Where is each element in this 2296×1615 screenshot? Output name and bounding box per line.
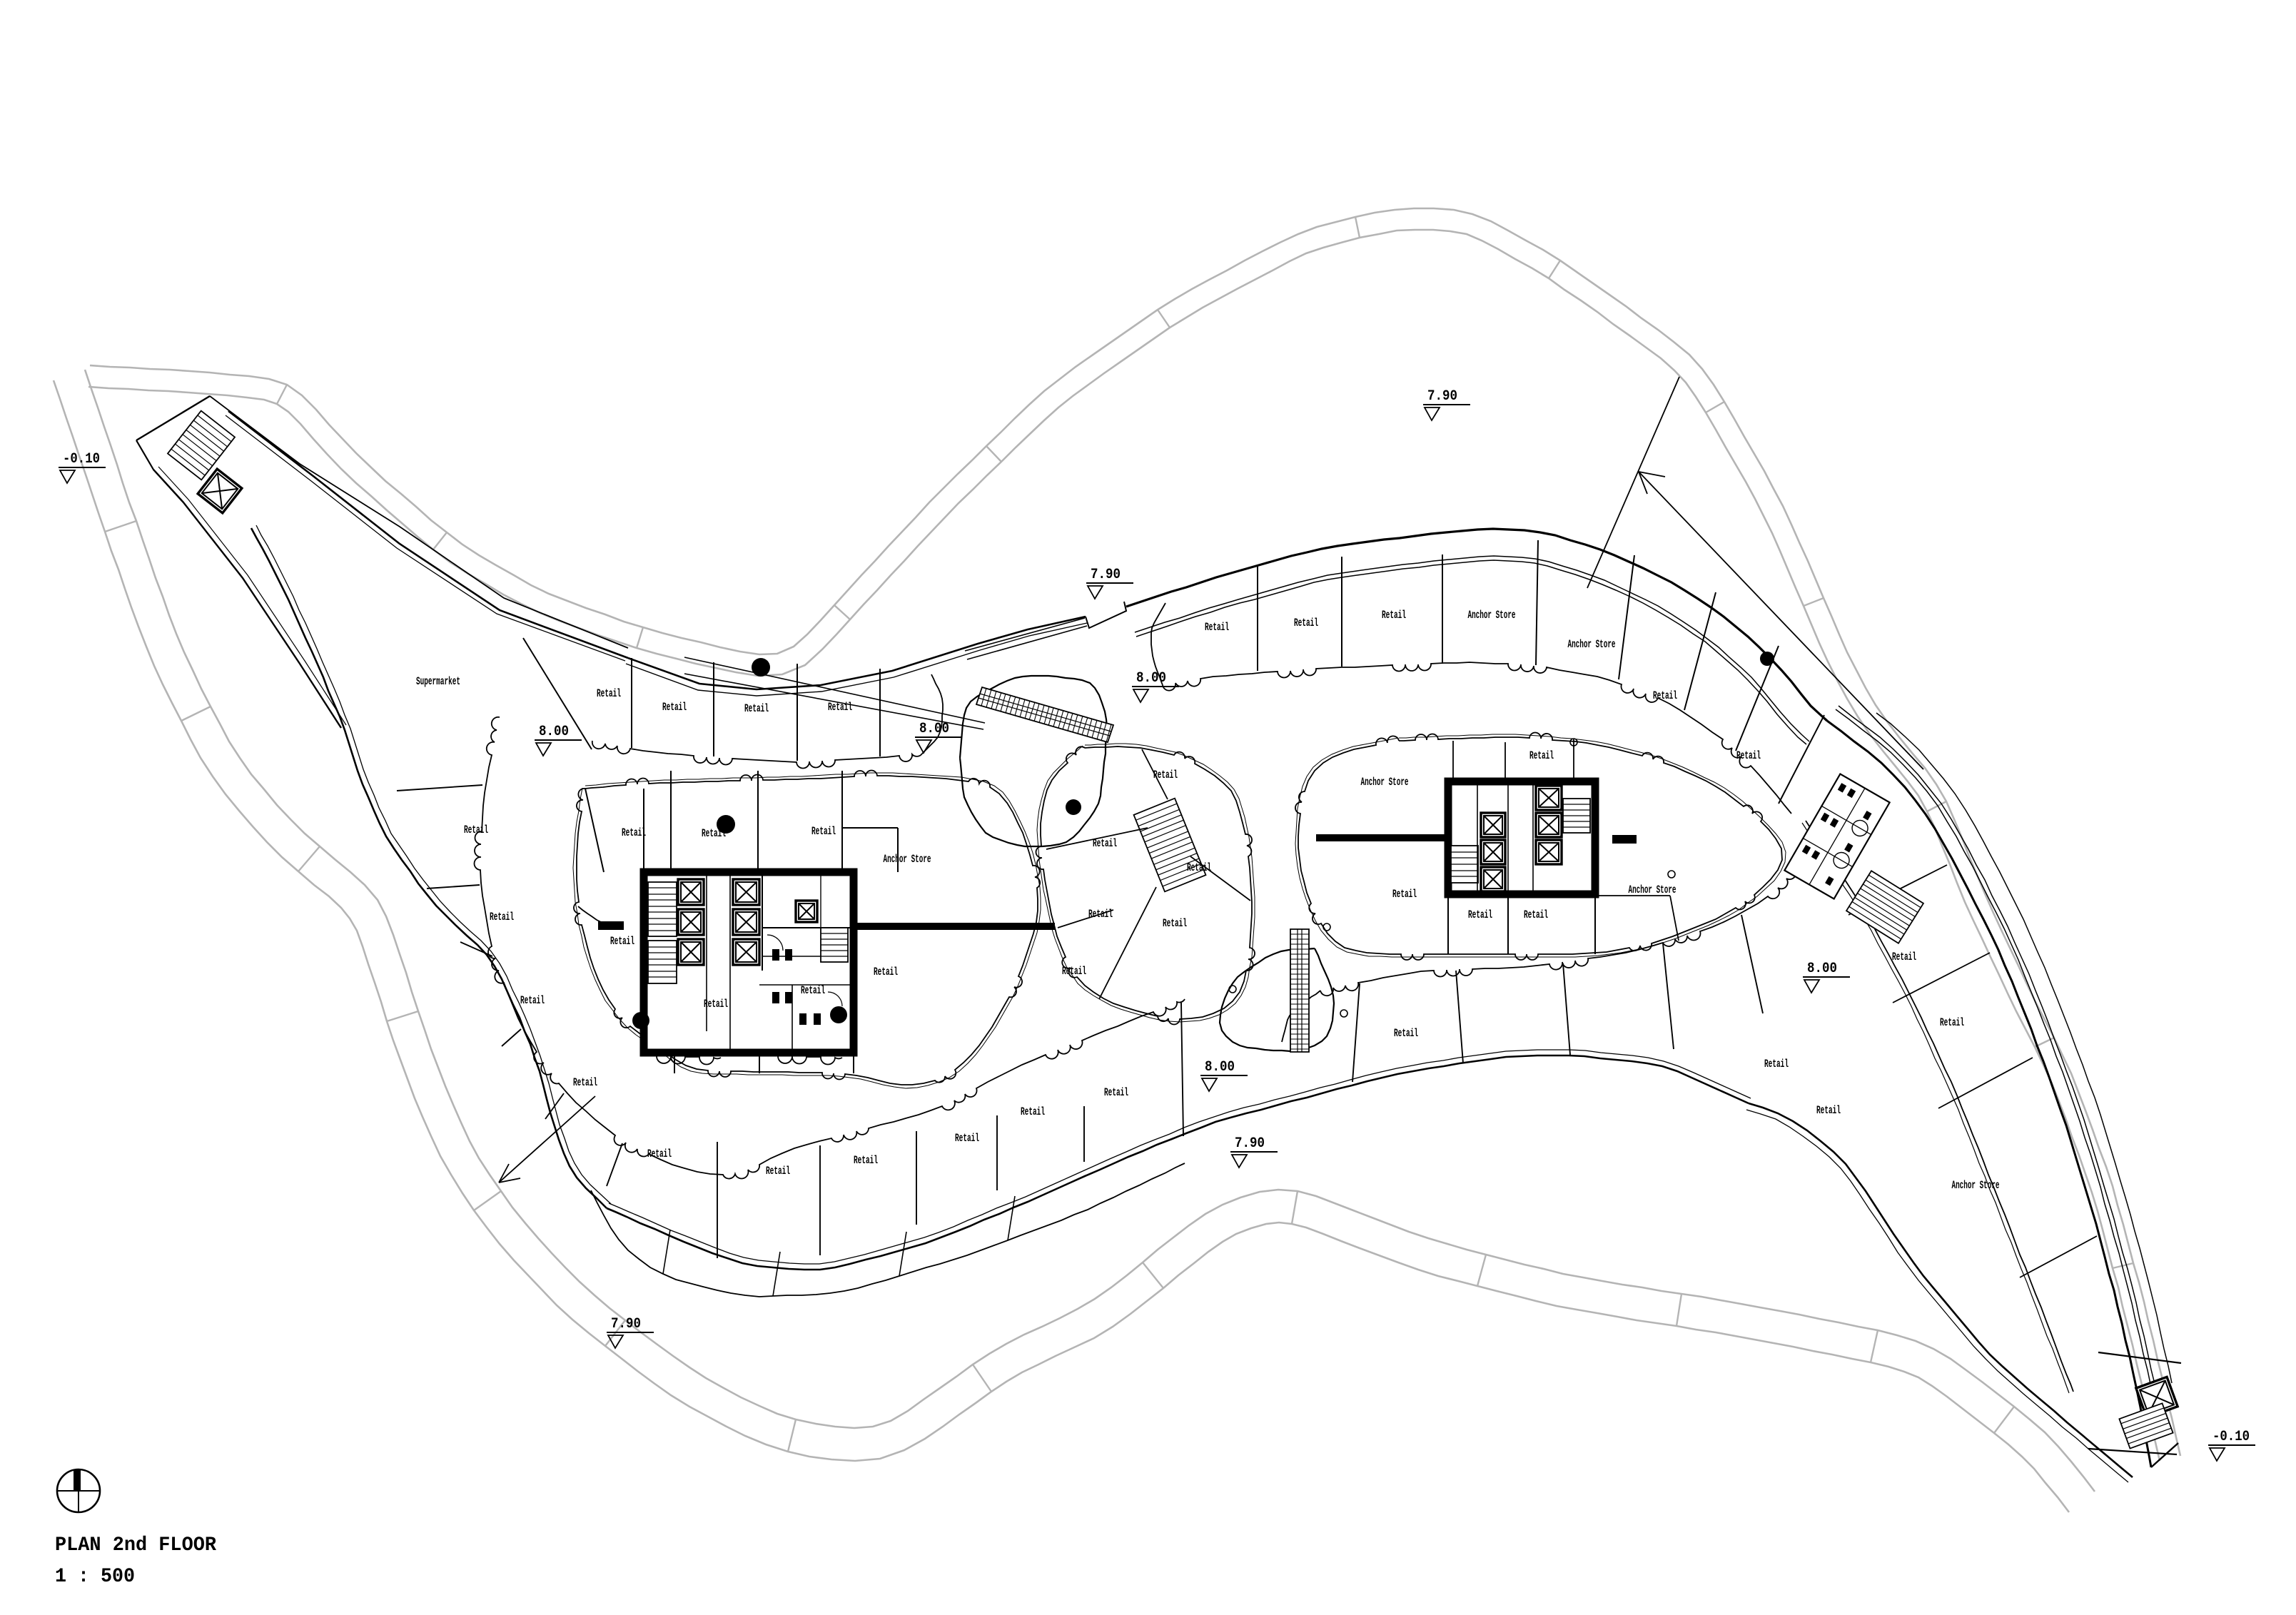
svg-text:Retail: Retail (704, 998, 728, 1011)
svg-text:Retail: Retail (610, 935, 634, 948)
svg-text:Retail: Retail (1062, 965, 1086, 978)
svg-text:7.90: 7.90 (611, 1316, 641, 1332)
svg-text:Retail: Retail (1892, 951, 1916, 963)
svg-text:Retail: Retail (1163, 917, 1187, 930)
svg-text:8.00: 8.00 (1205, 1059, 1235, 1075)
svg-text:Retail: Retail (464, 824, 488, 836)
svg-text:Retail: Retail (573, 1076, 597, 1089)
svg-text:Retail: Retail (1392, 888, 1417, 901)
svg-text:Retail: Retail (647, 1148, 672, 1160)
svg-text:Retail: Retail (801, 984, 825, 997)
svg-text:8.00: 8.00 (919, 721, 949, 737)
svg-text:Retail: Retail (1104, 1086, 1128, 1099)
svg-text:Anchor Store: Anchor Store (1952, 1179, 2000, 1192)
svg-text:-0.10: -0.10 (63, 451, 100, 467)
svg-text:1 : 500: 1 : 500 (55, 1566, 135, 1588)
svg-text:Retail: Retail (1093, 837, 1117, 850)
svg-text:Retail: Retail (874, 966, 898, 978)
svg-text:8.00: 8.00 (539, 724, 569, 740)
svg-text:Retail: Retail (1736, 749, 1761, 762)
svg-text:Retail: Retail (490, 911, 514, 923)
svg-text:Retail: Retail (955, 1132, 979, 1145)
svg-text:Anchor Store: Anchor Store (1629, 884, 1677, 896)
svg-text:Retail: Retail (1294, 617, 1318, 629)
svg-text:Retail: Retail (744, 702, 769, 715)
svg-text:Retail: Retail (828, 701, 852, 714)
svg-text:Retail: Retail (1940, 1016, 1964, 1029)
svg-text:Retail: Retail (1382, 609, 1406, 622)
svg-text:Supermarket: Supermarket (416, 675, 460, 688)
svg-text:Retail: Retail (1468, 908, 1492, 921)
svg-text:Retail: Retail (597, 687, 621, 700)
svg-text:Anchor Store: Anchor Store (884, 853, 931, 866)
svg-text:Retail: Retail (1524, 908, 1548, 921)
svg-text:Retail: Retail (1394, 1027, 1418, 1040)
svg-text:Retail: Retail (1529, 749, 1554, 762)
svg-text:Retail: Retail (1021, 1105, 1045, 1118)
svg-text:Retail: Retail (766, 1165, 790, 1178)
svg-text:Retail: Retail (702, 827, 726, 840)
svg-text:Anchor Store: Anchor Store (1361, 776, 1409, 789)
svg-text:8.00: 8.00 (1136, 670, 1166, 687)
svg-text:Retail: Retail (1088, 908, 1113, 921)
svg-text:Retail: Retail (1153, 769, 1178, 781)
svg-text:7.90: 7.90 (1091, 567, 1121, 583)
svg-text:Retail: Retail (1205, 621, 1229, 634)
svg-text:Retail: Retail (1764, 1058, 1789, 1070)
svg-text:PLAN 2nd FLOOR: PLAN 2nd FLOOR (55, 1534, 216, 1556)
svg-text:Anchor Store: Anchor Store (1568, 638, 1616, 651)
svg-text:Retail: Retail (1653, 689, 1677, 702)
svg-text:Retail: Retail (622, 826, 646, 839)
svg-text:7.90: 7.90 (1427, 388, 1457, 405)
svg-text:Anchor Store: Anchor Store (1468, 609, 1516, 622)
svg-text:Retail: Retail (662, 701, 687, 714)
svg-text:Retail: Retail (1816, 1104, 1841, 1117)
svg-text:Retail: Retail (520, 994, 545, 1007)
svg-text:7.90: 7.90 (1235, 1135, 1265, 1152)
svg-text:Retail: Retail (1187, 861, 1211, 874)
svg-text:Retail: Retail (811, 825, 836, 838)
svg-text:Retail: Retail (854, 1154, 878, 1167)
svg-text:-0.10: -0.10 (2212, 1429, 2250, 1445)
svg-text:8.00: 8.00 (1807, 961, 1837, 977)
